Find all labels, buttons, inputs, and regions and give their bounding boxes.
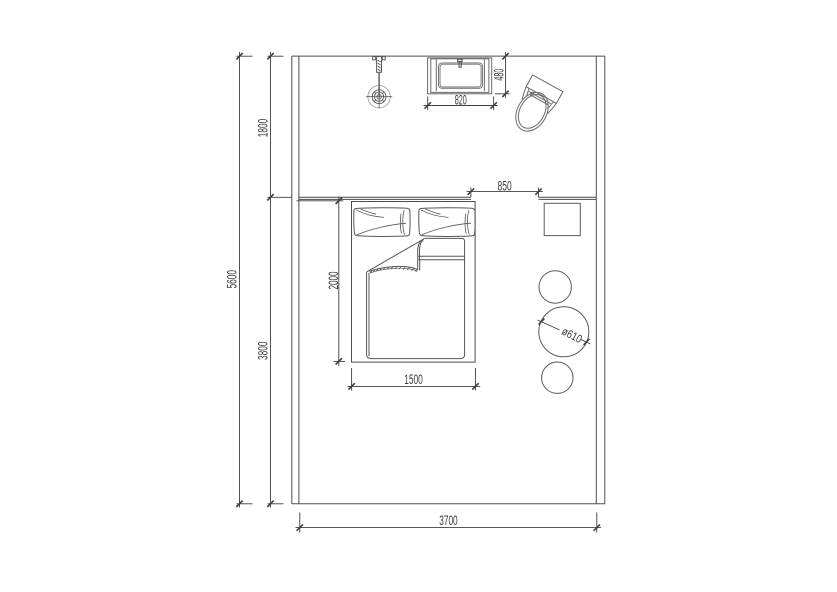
svg-text:2000: 2000 — [326, 272, 341, 290]
svg-text:1800: 1800 — [256, 119, 271, 138]
svg-text:850: 850 — [498, 179, 512, 194]
svg-text:3700: 3700 — [439, 513, 458, 528]
svg-text:820: 820 — [455, 92, 467, 107]
svg-text:3800: 3800 — [256, 342, 271, 361]
svg-text:480: 480 — [491, 69, 506, 81]
svg-text:1500: 1500 — [404, 372, 423, 387]
svg-text:5600: 5600 — [225, 270, 240, 289]
